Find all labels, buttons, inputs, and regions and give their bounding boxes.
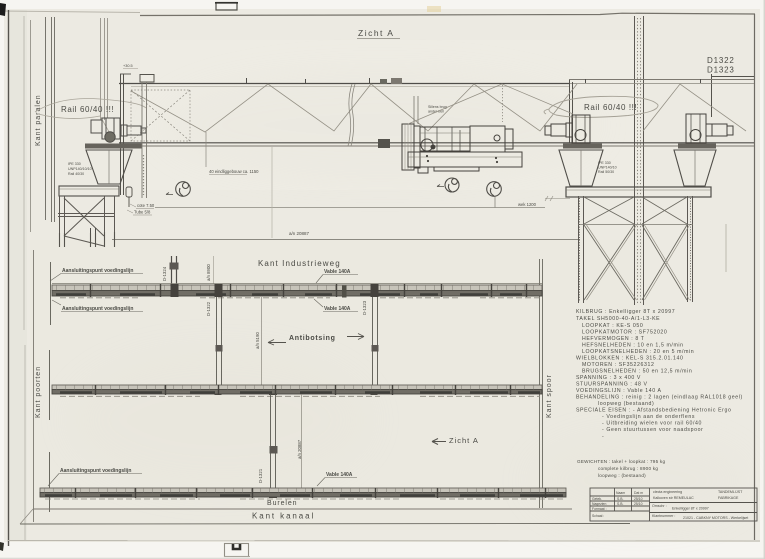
svg-text:LOOPKAT : KE-S 050: LOOPKAT : KE-S 050 — [582, 323, 643, 329]
svg-text:UNP140/10: UNP140/10 — [598, 166, 617, 170]
svg-text:- Uitbreiding wielen voor r: - Uitbreiding wielen voor rail 60/40 — [602, 421, 702, 427]
svg-text:HEFVERMOGEN : 8 T: HEFVERMOGEN : 8 T — [582, 336, 645, 342]
svg-text:KILBRUG : Enkelligger 8T x: KILBRUG : Enkelligger 8T x 20997 — [576, 309, 675, 315]
svg-text:VOEDINGSLIJN : Vable 140 A: VOEDINGSLIJN : Vable 140 A — [576, 388, 662, 394]
svg-text:Burelen: Burelen — [267, 500, 297, 507]
svg-text:Antibotsing: Antibotsing — [289, 335, 336, 342]
svg-text:D-1322: D-1322 — [206, 301, 211, 316]
svg-text:Aansluitingspunt voedingslijn: Aansluitingspunt voedingslijn — [60, 468, 131, 474]
svg-text:a/n 8900: a/n 8900 — [206, 264, 211, 281]
svg-text:wek 1200: wek 1200 — [518, 202, 537, 207]
svg-text:GEWICHTEN : takel + loopkat :: GEWICHTEN : takel + loopkat : 795 kg — [577, 459, 665, 464]
svg-text:Vable 140A: Vable 140A — [324, 306, 351, 312]
svg-text:WIELBLOKKEN : KEL-S 315.2.01.: WIELBLOKKEN : KEL-S 315.2.01.140 — [576, 356, 683, 362]
svg-text:a/n 20887: a/n 20887 — [289, 231, 310, 236]
svg-text:40 eindliggebouw ca. 1150: 40 eindliggebouw ca. 1150 — [209, 169, 259, 174]
svg-text:Zicht A: Zicht A — [358, 28, 394, 38]
svg-text:loopweg (bestaand): loopweg (bestaand) — [598, 401, 654, 407]
svg-text:Kant Industrieweg: Kant Industrieweg — [258, 259, 341, 268]
svg-text:- Geen stuurtussen voor naa: - Geen stuurtussen voor naadspoor — [602, 427, 703, 433]
svg-text:FABRIKAGE: FABRIKAGE — [718, 496, 739, 500]
svg-text:BRUGSNELHEDEN : 50 en 12,5: BRUGSNELHEDEN : 50 en 12,5 m/min — [582, 369, 692, 375]
svg-text:Klantnummer :: Klantnummer : — [652, 514, 675, 518]
svg-text:D-1321: D-1321 — [258, 468, 263, 483]
svg-text:Kalkoven str REMEULAC: Kalkoven str REMEULAC — [653, 496, 694, 500]
svg-text:Aansluitingspunt voedingslijn: Aansluitingspunt voedingslijn — [62, 306, 133, 312]
svg-text:Rail 50/30: Rail 50/30 — [598, 170, 614, 174]
svg-text:Vable 140A: Vable 140A — [324, 269, 351, 275]
svg-text:LOOPKATMOTOR : SF752020: LOOPKATMOTOR : SF752020 — [582, 330, 667, 336]
svg-text:-: - — [602, 434, 604, 440]
svg-text:TANDEMLIJST: TANDEMLIJST — [718, 490, 743, 494]
svg-text:IPE 330: IPE 330 — [68, 162, 81, 166]
svg-text:S.B.: S.B. — [617, 497, 623, 501]
svg-text:D1322: D1322 — [707, 56, 735, 65]
svg-text:MOTOREN : SF35226312: MOTOREN : SF35226312 — [582, 362, 654, 368]
svg-text:Naam: Naam — [616, 491, 625, 495]
svg-text:a/n 20887: a/n 20887 — [297, 439, 302, 459]
svg-text:Dat m: Dat m — [634, 491, 643, 495]
svg-text:Nagezien: Nagezien — [592, 502, 606, 506]
svg-text:- Voedingslijn aan de onder: - Voedingslijn aan de onderflens — [602, 414, 695, 420]
svg-text:cote 7.50: cote 7.50 — [137, 203, 155, 208]
svg-text:clecta engineering: clecta engineering — [653, 490, 682, 494]
svg-text:Enkelligger 8T x 20997: Enkelligger 8T x 20997 — [672, 507, 709, 511]
svg-text:complete kilbrug : 8900 kg: complete kilbrug : 8900 kg — [598, 466, 658, 471]
svg-text:Aansluitingspunt voedingslijn: Aansluitingspunt voedingslijn — [62, 268, 133, 274]
svg-text:Kant spoor: Kant spoor — [546, 374, 553, 418]
svg-text:25/10: 25/10 — [634, 497, 643, 501]
svg-text:Getek.: Getek. — [592, 497, 602, 501]
svg-text:Kant poorten: Kant poorten — [35, 366, 42, 418]
svg-text:STUURSPANNING : 48 V: STUURSPANNING : 48 V — [576, 382, 648, 388]
svg-text:D1323: D1323 — [707, 66, 735, 75]
svg-text:25/10: 25/10 — [634, 502, 643, 506]
svg-text:+30.5: +30.5 — [123, 64, 133, 68]
svg-text:Vable 140A: Vable 140A — [326, 472, 353, 478]
svg-text:Formaat :: Formaat : — [592, 507, 607, 511]
svg-text:Kant paralen: Kant paralen — [35, 94, 42, 146]
svg-text:Tube 5/8: Tube 5/8 — [134, 210, 151, 215]
svg-text:IPE 330: IPE 330 — [598, 161, 611, 165]
svg-text:LOOPKATSNELHEDEN : 20 en 5: LOOPKATSNELHEDEN : 20 en 5 m/min — [582, 349, 694, 355]
svg-text:Rail 60/40 !!!: Rail 60/40 !!! — [584, 103, 637, 112]
svg-text:21021 - CABKNY MOTORS - Wer: 21021 - CABKNY MOTORS - Werkelijset — [683, 516, 748, 520]
svg-text:D-1324: D-1324 — [162, 266, 167, 281]
svg-text:Rail 60/40 !!!: Rail 60/40 !!! — [61, 105, 114, 114]
svg-text:S.B.: S.B. — [617, 502, 623, 506]
svg-text:HEFSNELHEDEN : 10 en 1,5 m/: HEFSNELHEDEN : 10 en 1,5 m/min — [582, 343, 684, 349]
svg-text:ander bell: ander bell — [428, 110, 444, 114]
svg-text:Zicht A: Zicht A — [449, 436, 479, 445]
svg-text:loopweg : (bestaand): loopweg : (bestaand) — [598, 473, 646, 478]
svg-text:SPECIALE EISEN : - Afstandsbed: SPECIALE EISEN : - Afstandsbediening Het… — [576, 408, 731, 414]
svg-text:a/n 5190: a/n 5190 — [255, 332, 260, 349]
svg-text:Kant kanaal: Kant kanaal — [252, 512, 315, 521]
svg-text:SPANNING : 3 x 400 V: SPANNING : 3 x 400 V — [576, 375, 641, 381]
svg-text:D-1323: D-1323 — [362, 300, 367, 315]
svg-text:Schaal :: Schaal : — [592, 514, 604, 518]
svg-text:Rail 40/30: Rail 40/30 — [68, 172, 84, 176]
svg-text:BEHANDELING : reinig : 2 lage: BEHANDELING : reinig : 2 lagen (eindlaag… — [576, 395, 743, 401]
svg-text:UNP140/10/10: UNP140/10/10 — [68, 167, 92, 171]
svg-text:TAKEL SH5000-40-A/1-L3-KE: TAKEL SH5000-40-A/1-L3-KE — [576, 316, 660, 322]
svg-text:Omschr :: Omschr : — [652, 504, 667, 508]
